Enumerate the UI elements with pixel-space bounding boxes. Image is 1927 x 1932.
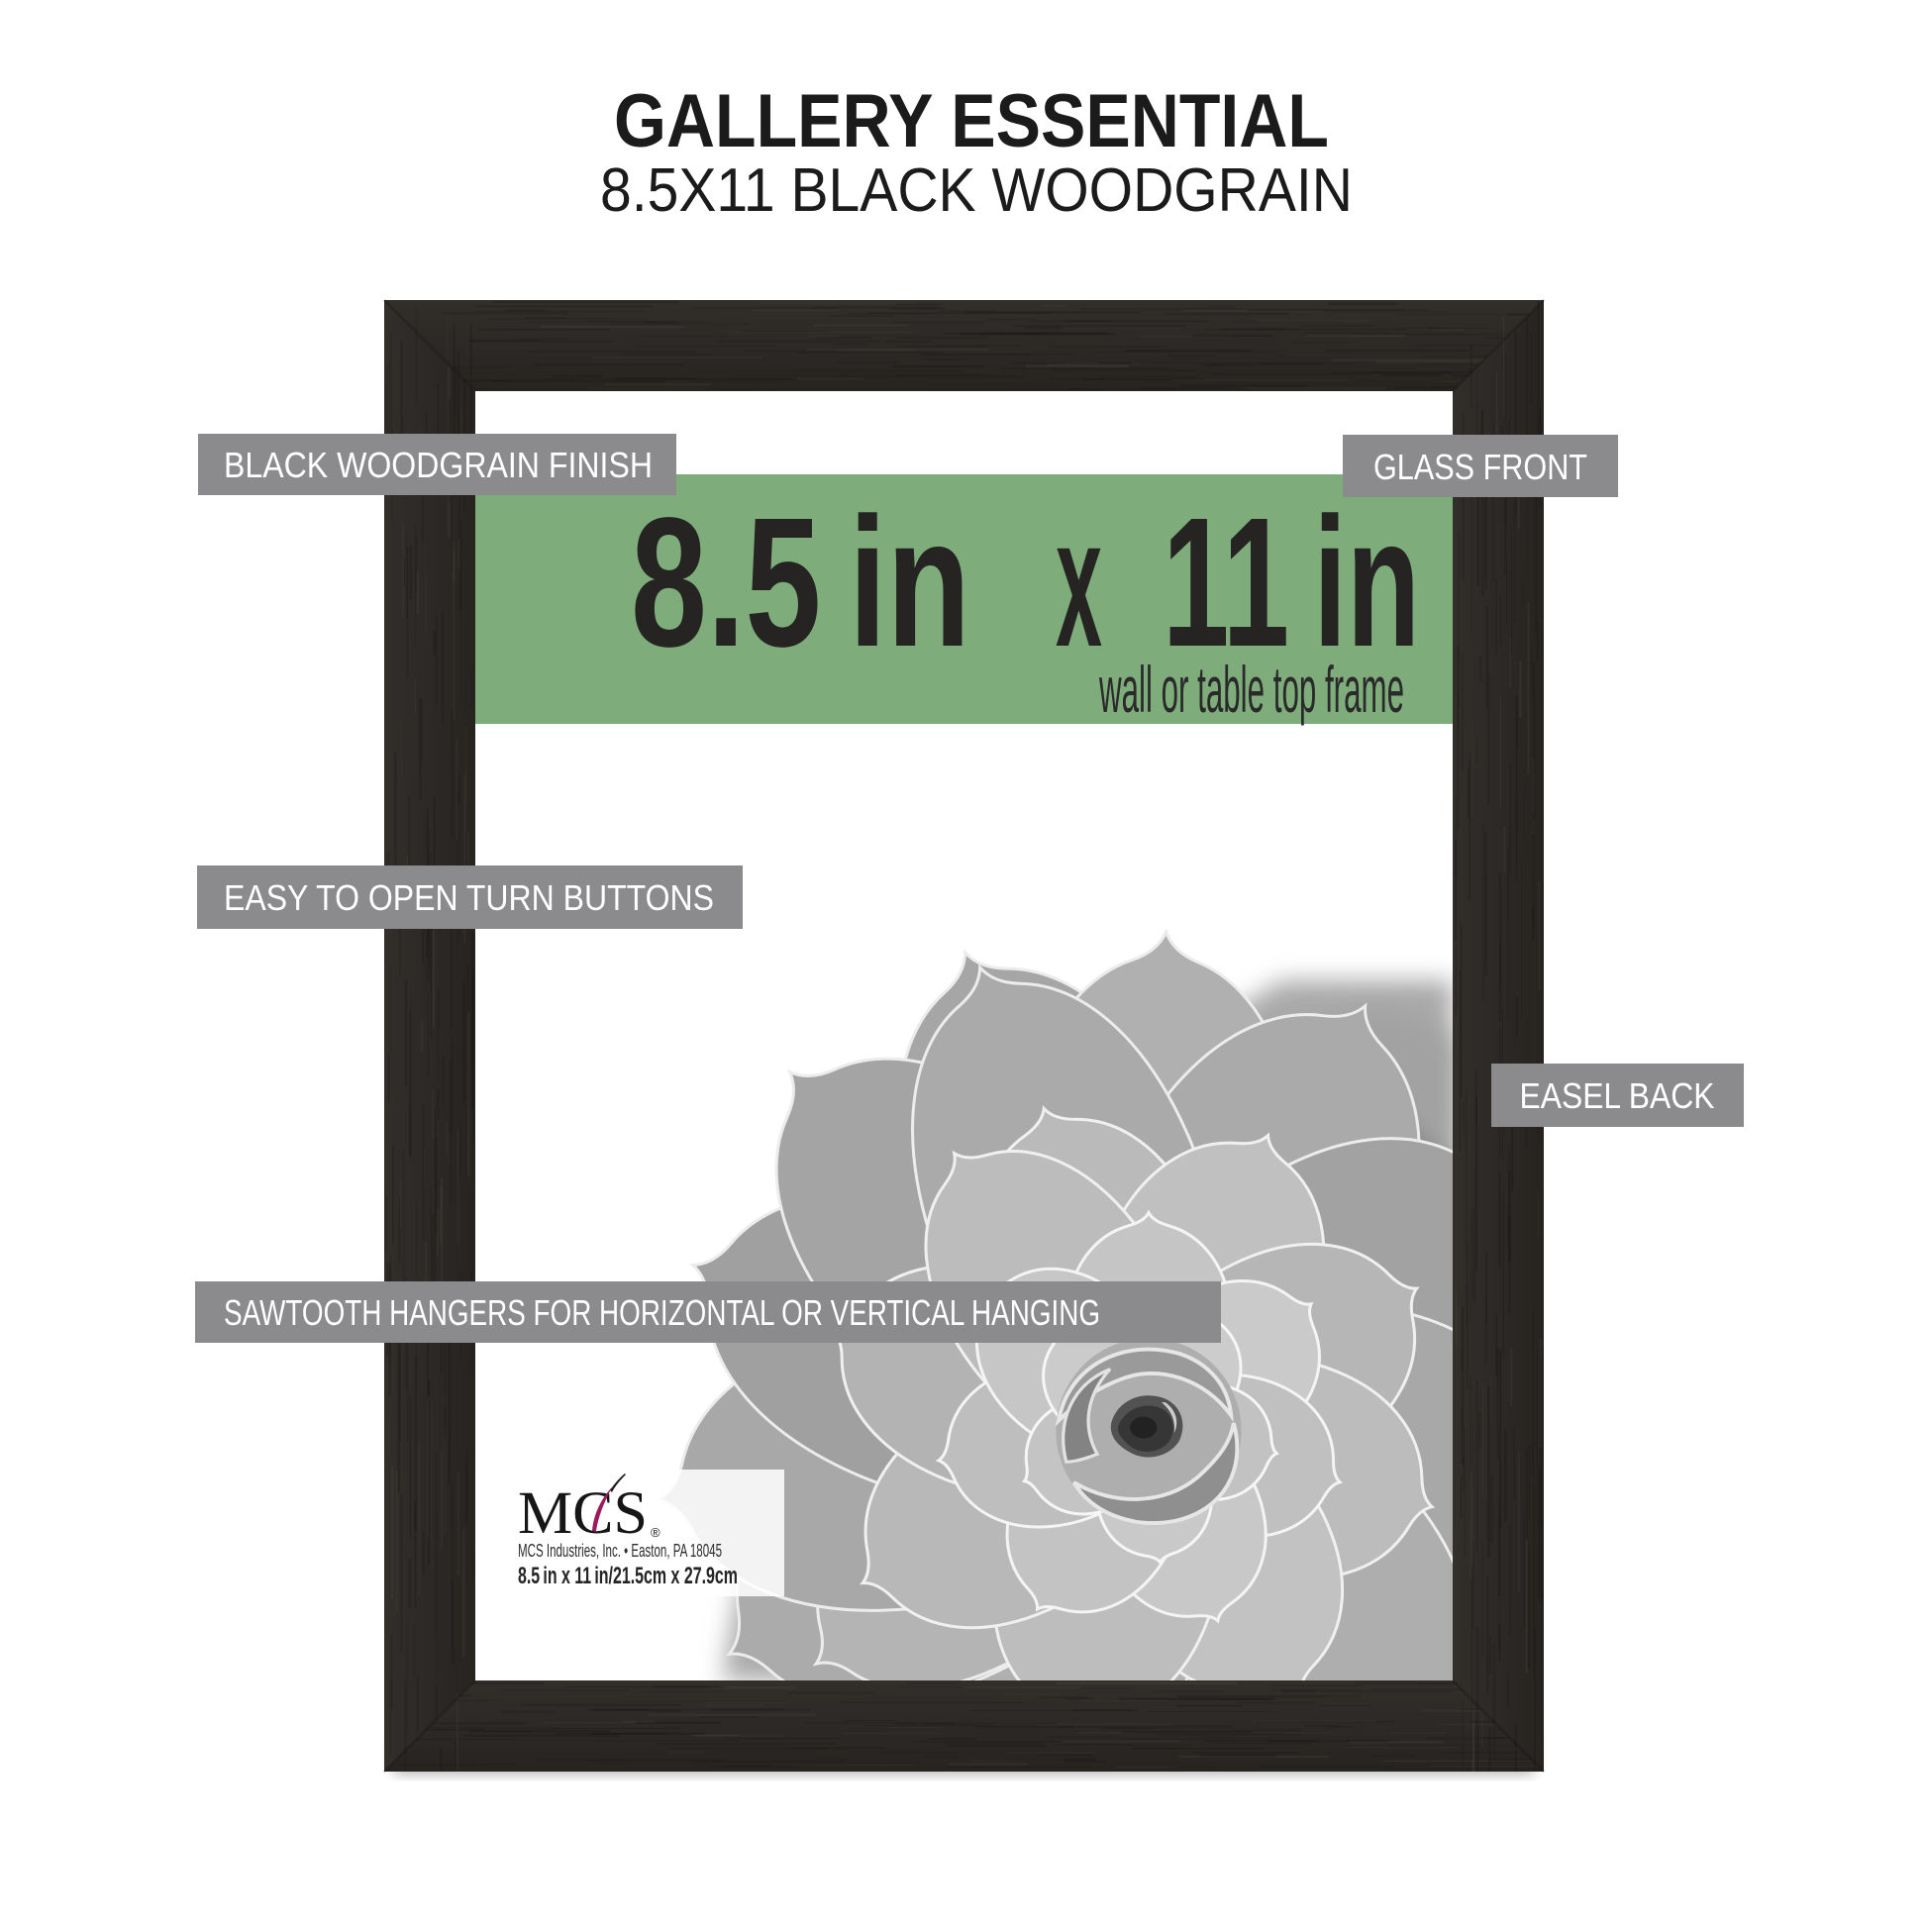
svg-text:EASY TO OPEN TURN BUTTONS: EASY TO OPEN TURN BUTTONS	[224, 877, 714, 918]
svg-text:8.5 in: 8.5 in	[631, 480, 970, 685]
svg-text:SAWTOOTH HANGERS FOR HORIZONTA: SAWTOOTH HANGERS FOR HORIZONTAL OR VERTI…	[224, 1292, 1100, 1333]
svg-text:MCS: MCS	[518, 1480, 648, 1547]
svg-text:GLASS FRONT: GLASS FRONT	[1373, 447, 1587, 487]
svg-text:x: x	[1056, 480, 1102, 685]
svg-text:8.5X11 BLACK WOODGRAIN: 8.5X11 BLACK WOODGRAIN	[600, 156, 1353, 225]
svg-text:GALLERY ESSENTIAL: GALLERY ESSENTIAL	[614, 79, 1329, 163]
svg-text:MCS Industries, Inc. • Easto: MCS Industries, Inc. • Easton, PA 18045	[518, 1541, 722, 1561]
svg-text:8.5 in x 11 in/21.5cm x 27: 8.5 in x 11 in/21.5cm x 27.9cm	[518, 1563, 738, 1589]
svg-text:wall or table top frame: wall or table top frame	[1099, 653, 1404, 726]
svg-text:BLACK WOODGRAIN FINISH: BLACK WOODGRAIN FINISH	[224, 445, 653, 485]
svg-text:®: ®	[651, 1525, 660, 1540]
svg-text:EASEL BACK: EASEL BACK	[1520, 1075, 1715, 1116]
